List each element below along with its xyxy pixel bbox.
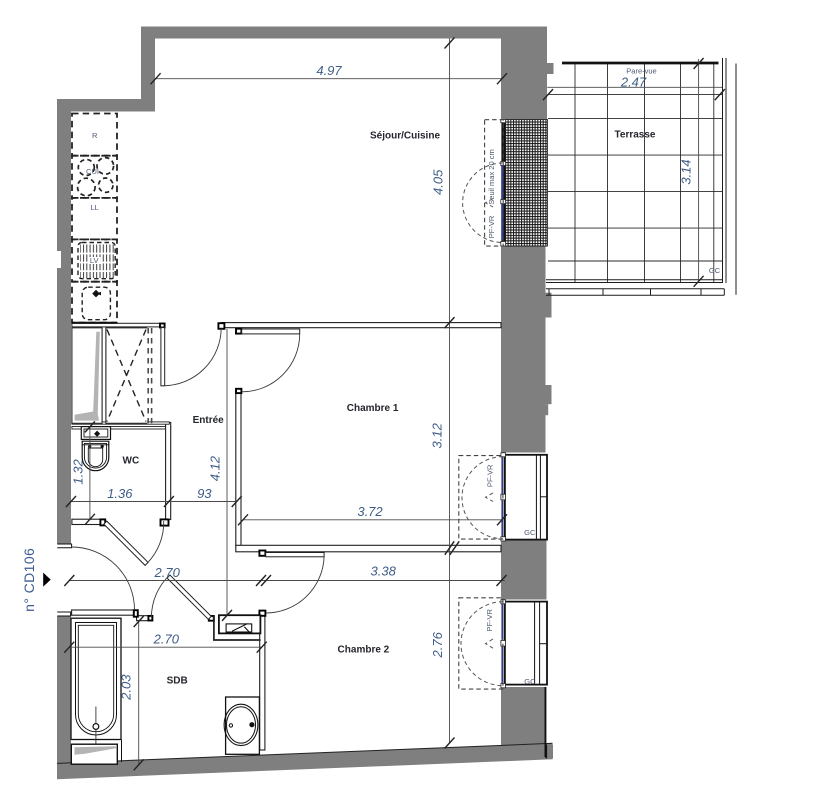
svg-text:Entrée: Entrée: [193, 415, 225, 426]
svg-text:PF-VR: PF-VR: [485, 608, 494, 631]
svg-text:3.12: 3.12: [430, 422, 445, 448]
svg-text:GC: GC: [524, 677, 536, 686]
svg-text:WC: WC: [123, 455, 140, 466]
svg-text:R: R: [92, 131, 98, 140]
svg-text:Séjour/Cuisine: Séjour/Cuisine: [370, 131, 440, 142]
svg-text:Chambre 2: Chambre 2: [338, 644, 390, 655]
svg-text:4.12: 4.12: [207, 455, 222, 481]
svg-text:SDB: SDB: [167, 676, 188, 687]
svg-text:2.70: 2.70: [153, 632, 180, 647]
svg-text:Seuil max 20 cm: Seuil max 20 cm: [487, 149, 496, 204]
svg-text:PF-VR: PF-VR: [486, 464, 495, 487]
svg-text:4.97: 4.97: [316, 63, 342, 78]
svg-text:3.72: 3.72: [357, 504, 383, 519]
svg-text:Chambre 1: Chambre 1: [347, 403, 399, 414]
svg-text:LV: LV: [90, 256, 99, 265]
svg-text:2.76: 2.76: [430, 631, 445, 658]
svg-text:Pare-vue: Pare-vue: [626, 67, 656, 76]
svg-text:LL: LL: [91, 203, 99, 212]
svg-text:2.47: 2.47: [620, 75, 647, 90]
svg-text:93: 93: [197, 486, 212, 501]
svg-text:PF-VR: PF-VR: [487, 215, 496, 238]
svg-text:2.70: 2.70: [154, 565, 181, 580]
svg-text:GC: GC: [709, 266, 721, 275]
svg-text:4.05: 4.05: [430, 169, 445, 195]
svg-text:3.38: 3.38: [371, 563, 397, 578]
svg-text:2.03: 2.03: [119, 674, 134, 701]
svg-text:1.32: 1.32: [71, 458, 86, 484]
svg-text:Terrasse: Terrasse: [615, 130, 656, 141]
svg-text:3.14: 3.14: [679, 159, 694, 184]
svg-text:CUI: CUI: [86, 167, 99, 176]
svg-text:GC: GC: [524, 528, 536, 537]
svg-text:n° CD106: n° CD106: [21, 548, 37, 612]
svg-text:1.36: 1.36: [107, 486, 133, 501]
